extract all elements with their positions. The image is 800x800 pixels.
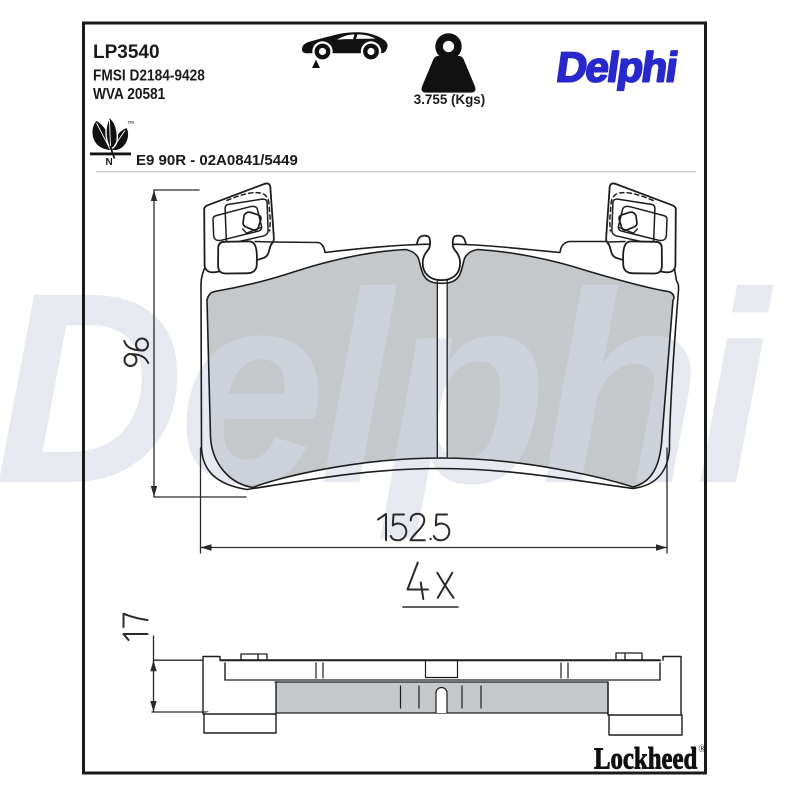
svg-text:®: ® [699, 744, 707, 755]
svg-text:3.755 (Kgs): 3.755 (Kgs) [414, 92, 485, 107]
svg-text:FMSI D2184-9428: FMSI D2184-9428 [93, 68, 205, 85]
svg-text:Delphi: Delphi [0, 235, 774, 541]
svg-text:LP3540: LP3540 [93, 42, 160, 63]
svg-text:™: ™ [127, 119, 135, 128]
svg-text:E9 90R - 02A0841/5449: E9 90R - 02A0841/5449 [136, 152, 298, 169]
svg-text:Delphi: Delphi [554, 44, 680, 91]
svg-text:WVA 20581: WVA 20581 [93, 86, 165, 103]
svg-text:N: N [106, 157, 113, 168]
svg-text:Lockheed: Lockheed [594, 742, 698, 776]
